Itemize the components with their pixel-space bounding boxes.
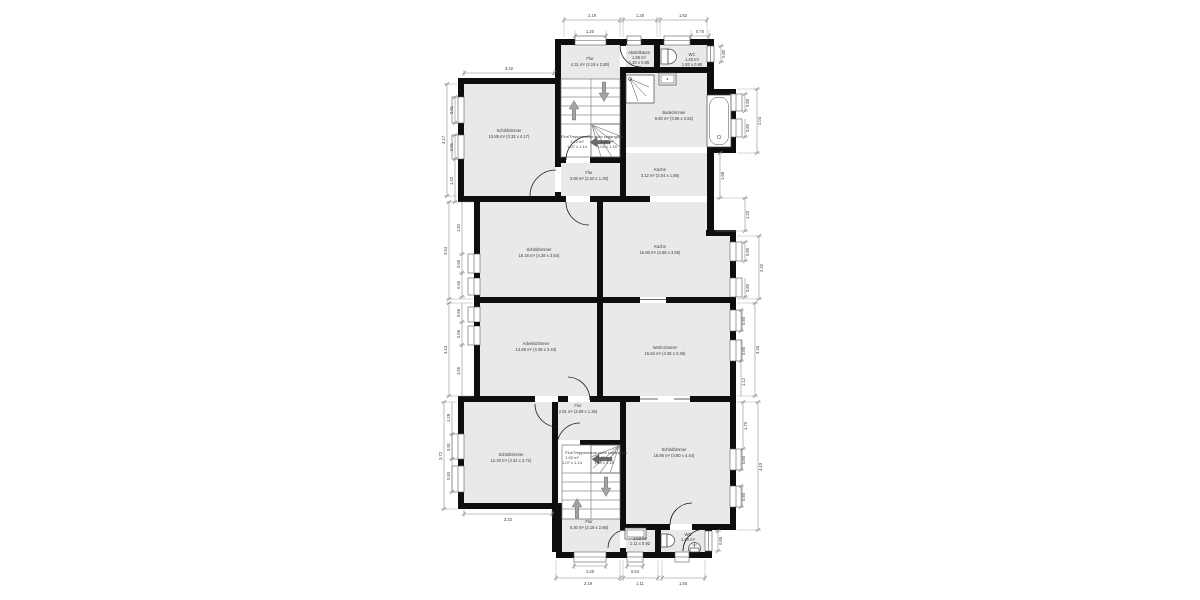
svg-text:4.43: 4.43 xyxy=(758,462,763,471)
svg-text:1.07 x 1.14: 1.07 x 1.14 xyxy=(562,460,583,465)
svg-text:0.66: 0.66 xyxy=(456,308,461,317)
svg-text:1.26: 1.26 xyxy=(636,13,645,18)
svg-text:3.32: 3.32 xyxy=(504,517,513,522)
svg-text:0.93: 0.93 xyxy=(446,471,451,480)
svg-text:Flur: Flur xyxy=(586,56,594,61)
svg-text:Flur: Flur xyxy=(585,170,593,175)
svg-text:1.11 x 0.92: 1.11 x 0.92 xyxy=(630,541,651,546)
svg-text:16.86 m² (3.80 x 4.44): 16.86 m² (3.80 x 4.44) xyxy=(654,453,695,458)
svg-text:0.80: 0.80 xyxy=(741,455,746,464)
svg-text:0.64: 0.64 xyxy=(631,569,640,574)
svg-text:3.45: 3.45 xyxy=(755,345,760,354)
svg-text:Flur: Flur xyxy=(574,403,582,408)
svg-text:Flur: Flur xyxy=(585,519,593,524)
svg-text:1.70: 1.70 xyxy=(743,421,748,430)
svg-text:0.80: 0.80 xyxy=(745,247,750,256)
svg-text:Schlafzimmer: Schlafzimmer xyxy=(496,128,522,133)
svg-text:0.80: 0.80 xyxy=(745,98,750,107)
svg-text:2.04: 2.04 xyxy=(757,116,762,125)
svg-text:2.91 m² (2.09 x 1.36): 2.91 m² (2.09 x 1.36) xyxy=(559,409,598,414)
svg-text:0.80: 0.80 xyxy=(741,492,746,501)
svg-text:Küche: Küche xyxy=(654,244,666,249)
svg-text:1.40 m²: 1.40 m² xyxy=(681,537,696,542)
svg-text:9.60 m² (3.65 x 2.62): 9.60 m² (3.65 x 2.62) xyxy=(655,116,694,121)
svg-text:1.20 x 0.86: 1.20 x 0.86 xyxy=(629,60,650,65)
svg-text:Schlafzimmer: Schlafzimmer xyxy=(526,247,552,252)
svg-text:13.85 m² (3.32 x 4.17): 13.85 m² (3.32 x 4.17) xyxy=(489,134,530,139)
svg-text:0.85: 0.85 xyxy=(718,536,723,545)
svg-text:Wohnzimmer: Wohnzimmer xyxy=(653,345,678,350)
svg-text:1.11: 1.11 xyxy=(636,581,644,586)
svg-text:Arbeitszimmer: Arbeitszimmer xyxy=(523,341,550,346)
svg-text:0.80: 0.80 xyxy=(745,123,750,132)
svg-text:15.90 m² (4.68 x 3.65): 15.90 m² (4.68 x 3.65) xyxy=(640,250,681,255)
svg-text:3.06 m² (2.20 x 1.39): 3.06 m² (2.20 x 1.39) xyxy=(570,176,609,181)
svg-text:15.16 m² (4.28 x 3.54): 15.16 m² (4.28 x 3.54) xyxy=(519,253,560,258)
svg-text:0.80: 0.80 xyxy=(741,346,746,355)
svg-text:1.66: 1.66 xyxy=(456,366,461,375)
svg-text:0.91: 0.91 xyxy=(449,105,454,114)
svg-text:1.55: 1.55 xyxy=(679,581,688,586)
svg-text:1.82: 1.82 xyxy=(679,13,688,18)
svg-text:2.32: 2.32 xyxy=(759,263,764,272)
svg-text:1.40: 1.40 xyxy=(449,176,454,185)
svg-text:3.72: 3.72 xyxy=(438,451,443,460)
svg-text:1.92: 1.92 xyxy=(456,223,461,232)
svg-text:0.80: 0.80 xyxy=(721,49,726,58)
svg-text:1.03 x 1.15: 1.03 x 1.15 xyxy=(594,460,615,465)
svg-text:1.20: 1.20 xyxy=(586,569,595,574)
svg-text:12.33 m² (3.32 x 3.72): 12.33 m² (3.32 x 3.72) xyxy=(491,458,532,463)
svg-text:Schlafzimmer: Schlafzimmer xyxy=(661,447,687,452)
svg-text:3.32: 3.32 xyxy=(505,66,514,71)
svg-text:0.70: 0.70 xyxy=(696,29,705,34)
svg-text:14.68 m² (4.28 x 3.43): 14.68 m² (4.28 x 3.43) xyxy=(516,347,557,352)
svg-text:4.31 m² (2.19 x 2.80): 4.31 m² (2.19 x 2.80) xyxy=(571,62,610,67)
svg-text:Badezimmer: Badezimmer xyxy=(662,110,686,115)
svg-text:4.17: 4.17 xyxy=(441,135,446,144)
svg-text:1.29: 1.29 xyxy=(446,413,451,422)
svg-text:0.66: 0.66 xyxy=(456,259,461,268)
svg-text:1.03 x 1.15: 1.03 x 1.15 xyxy=(597,144,618,149)
svg-text:3.12 m² (2.04 x 1.86): 3.12 m² (2.04 x 1.86) xyxy=(641,173,680,178)
svg-text:1.82 x 0.80: 1.82 x 0.80 xyxy=(682,62,703,67)
svg-text:0.91: 0.91 xyxy=(446,442,451,451)
svg-text:15.84 m² (4.36 x 3.48): 15.84 m² (4.36 x 3.48) xyxy=(645,351,686,356)
svg-text:0.91: 0.91 xyxy=(449,142,454,151)
svg-text:0.66: 0.66 xyxy=(456,329,461,338)
svg-text:Schlafzimmer: Schlafzimmer xyxy=(498,452,524,457)
svg-text:0.80: 0.80 xyxy=(745,283,750,292)
svg-text:Küche: Küche xyxy=(654,167,666,172)
svg-text:3.43: 3.43 xyxy=(443,345,448,354)
svg-text:0.80: 0.80 xyxy=(741,316,746,325)
svg-text:1.07 x 1.14: 1.07 x 1.14 xyxy=(567,144,588,149)
svg-text:1.20: 1.20 xyxy=(586,29,595,34)
svg-text:3.54: 3.54 xyxy=(443,246,448,255)
svg-text:2.19: 2.19 xyxy=(588,13,597,18)
svg-text:6.30 m² (2.19 x 2.88): 6.30 m² (2.19 x 2.88) xyxy=(570,525,609,530)
svg-text:1.68: 1.68 xyxy=(720,171,725,180)
svg-text:0.65: 0.65 xyxy=(456,280,461,289)
svg-text:2.19: 2.19 xyxy=(584,581,593,586)
svg-text:1.12: 1.12 xyxy=(741,377,746,386)
svg-text:1.33: 1.33 xyxy=(745,210,750,219)
